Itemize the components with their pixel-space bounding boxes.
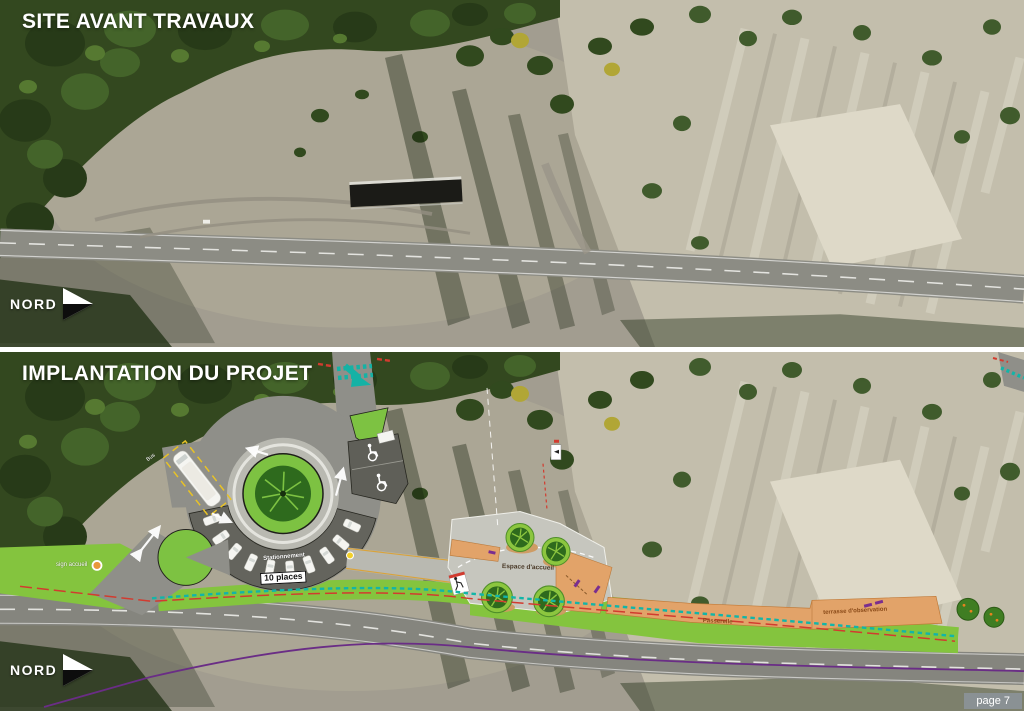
page-title-project: IMPLANTATION DU PROJET (22, 362, 312, 386)
north-arrow-icon (63, 288, 93, 320)
north-indicator-project: NORD (10, 654, 93, 686)
aerial-photo-before (0, 0, 1024, 347)
north-indicator-before: NORD (10, 288, 93, 320)
welcome-sign-marker (93, 561, 102, 570)
panel-site-avant-travaux: SITE AVANT TRAVAUX NORD (0, 0, 1024, 347)
north-arrow-icon (63, 654, 93, 686)
page-number-badge: page 7 (964, 693, 1022, 709)
north-label: NORD (10, 296, 57, 312)
north-label: NORD (10, 662, 57, 678)
welcome-sign-label: sign accueil (56, 562, 87, 568)
light-marker (347, 552, 354, 559)
panel-implantation-projet: IMPLANTATION DU PROJET Bus Stationnement… (0, 352, 1024, 711)
aerial-photo-project (0, 352, 1024, 711)
document-page: SITE AVANT TRAVAUX NORD (0, 0, 1024, 711)
parking-count-label: 10 places (260, 571, 307, 585)
roundabout-island (227, 438, 339, 550)
accessible-parking (348, 430, 408, 504)
page-title-before: SITE AVANT TRAVAUX (22, 10, 254, 34)
